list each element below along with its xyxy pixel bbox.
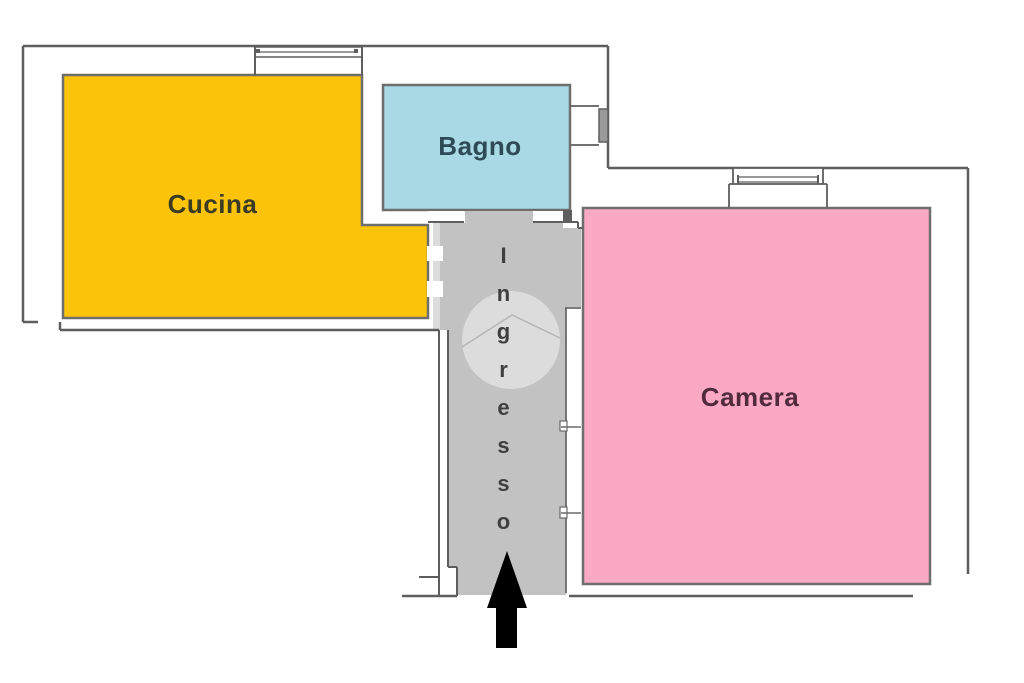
room-label-camera: Camera xyxy=(675,382,825,413)
wall-light-strip xyxy=(433,223,440,330)
room-label-cucina: Cucina xyxy=(140,189,285,220)
window-top-cucina-icon xyxy=(255,46,362,75)
window-camera-icon xyxy=(729,168,827,207)
room-label-bagno: Bagno xyxy=(410,131,550,162)
floor-plan-canvas: Cucina Bagno Camera Ingresso xyxy=(0,0,1024,683)
room-label-ingresso: Ingresso xyxy=(490,243,516,533)
window-bagno-icon xyxy=(570,106,608,145)
